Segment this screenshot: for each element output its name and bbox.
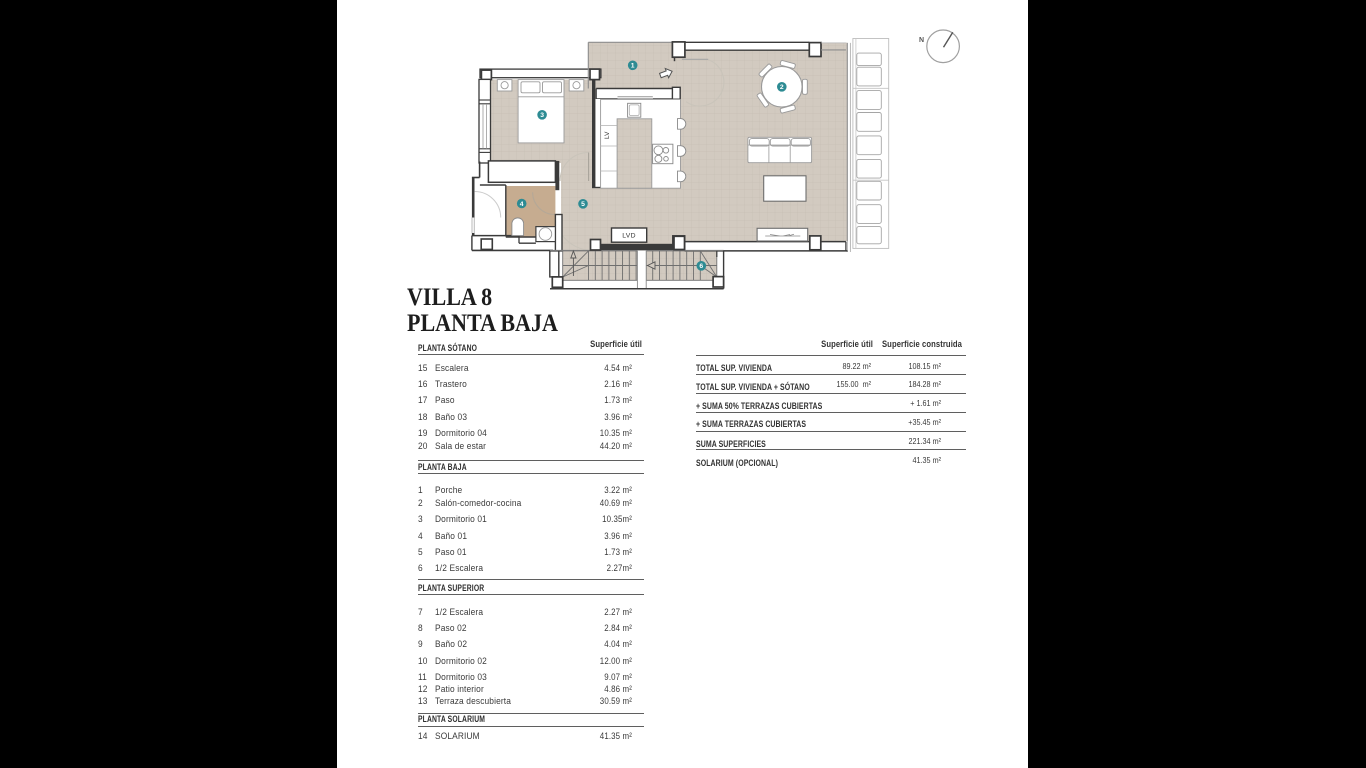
svg-text:6: 6 (699, 263, 703, 270)
svg-text:2: 2 (780, 84, 784, 91)
svg-text:3: 3 (540, 112, 544, 119)
svg-text:1: 1 (631, 63, 635, 70)
svg-text:LVD: LVD (622, 233, 636, 240)
svg-text:N: N (919, 37, 924, 44)
svg-text:LV: LV (604, 131, 611, 139)
svg-text:4: 4 (520, 201, 524, 208)
svg-text:5: 5 (581, 201, 585, 208)
